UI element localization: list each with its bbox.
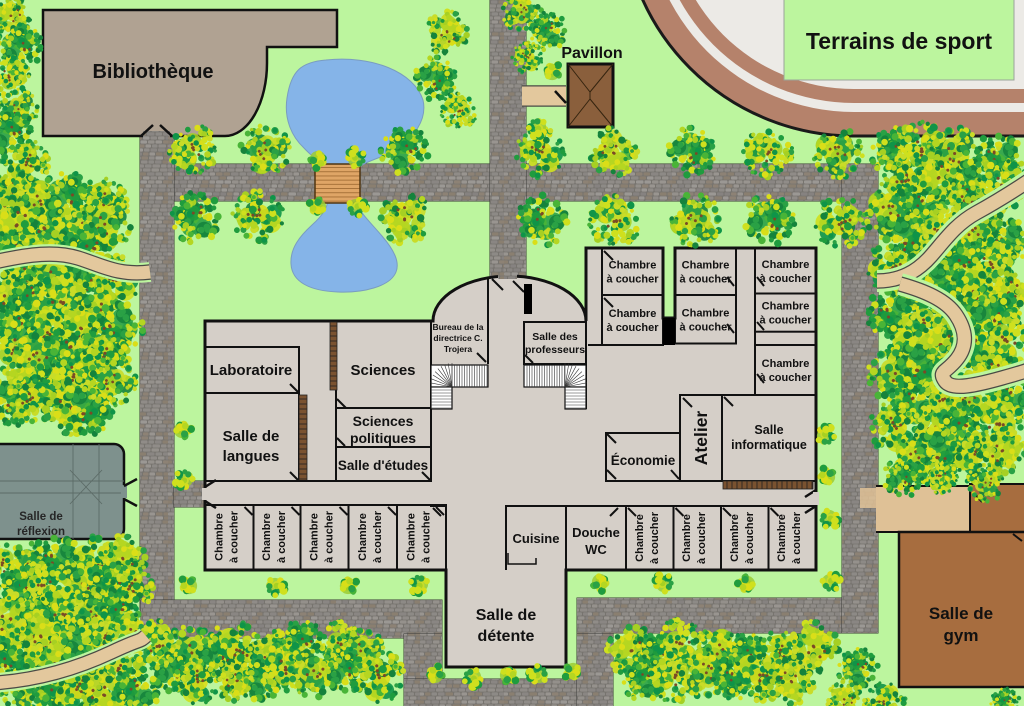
svg-text:Terrains de sport: Terrains de sport <box>806 28 993 54</box>
svg-text:Chambre: Chambre <box>406 513 418 561</box>
svg-text:détente: détente <box>478 628 535 645</box>
svg-text:Salle de: Salle de <box>929 604 993 623</box>
svg-text:Bureau de la: Bureau de la <box>432 322 483 332</box>
svg-text:Chambre: Chambre <box>261 513 273 561</box>
svg-text:à coucher: à coucher <box>760 372 813 384</box>
svg-text:Cuisine: Cuisine <box>513 531 560 546</box>
svg-text:WC: WC <box>585 542 607 557</box>
svg-text:Bibliothèque: Bibliothèque <box>92 61 213 83</box>
svg-text:à coucher: à coucher <box>791 511 803 564</box>
svg-text:Salle d'études: Salle d'études <box>338 458 428 473</box>
svg-text:Chambre: Chambre <box>609 260 657 272</box>
svg-text:Salle de: Salle de <box>223 428 280 445</box>
svg-text:Chambre: Chambre <box>357 513 369 561</box>
svg-text:à coucher: à coucher <box>680 321 733 333</box>
svg-text:directrice C.: directrice C. <box>433 333 482 343</box>
svg-text:à coucher: à coucher <box>760 315 813 327</box>
svg-text:à coucher: à coucher <box>649 511 661 564</box>
svg-text:Chambre: Chambre <box>762 358 810 370</box>
svg-text:Chambre: Chambre <box>309 513 321 561</box>
svg-text:à coucher: à coucher <box>276 510 288 563</box>
svg-text:à coucher: à coucher <box>421 510 433 563</box>
svg-text:Atelier: Atelier <box>691 411 711 466</box>
svg-text:à coucher: à coucher <box>744 511 756 564</box>
svg-text:à coucher: à coucher <box>680 274 733 286</box>
svg-text:Économie: Économie <box>611 453 676 468</box>
svg-text:Sciences: Sciences <box>353 413 414 429</box>
svg-text:à coucher: à coucher <box>324 510 336 563</box>
svg-text:Chambre: Chambre <box>762 301 810 313</box>
svg-text:à coucher: à coucher <box>760 273 813 285</box>
svg-text:Chambre: Chambre <box>762 259 810 271</box>
svg-text:Salle: Salle <box>754 423 783 437</box>
svg-text:Chambre: Chambre <box>682 260 730 272</box>
svg-text:Salle de: Salle de <box>19 511 62 523</box>
svg-text:gym: gym <box>944 626 979 645</box>
svg-text:Chambre: Chambre <box>681 514 693 562</box>
svg-text:Sciences: Sciences <box>350 362 415 379</box>
svg-text:Pavillon: Pavillon <box>561 45 622 62</box>
svg-text:Trojera: Trojera <box>444 344 473 354</box>
svg-text:à coucher: à coucher <box>372 510 384 563</box>
svg-text:professeurs: professeurs <box>525 344 585 356</box>
svg-text:informatique: informatique <box>731 438 807 452</box>
svg-text:Chambre: Chambre <box>776 514 788 562</box>
svg-text:Chambre: Chambre <box>214 513 226 561</box>
svg-text:Chambre: Chambre <box>634 514 646 562</box>
svg-text:à coucher: à coucher <box>607 274 660 286</box>
svg-text:Salle de: Salle de <box>476 607 537 624</box>
svg-text:langues: langues <box>223 448 280 465</box>
svg-text:à coucher: à coucher <box>607 322 660 334</box>
svg-text:Douche: Douche <box>572 525 620 540</box>
svg-text:Chambre: Chambre <box>729 514 741 562</box>
svg-text:Salle des: Salle des <box>532 331 578 343</box>
svg-text:à coucher: à coucher <box>696 511 708 564</box>
svg-text:Chambre: Chambre <box>609 308 657 320</box>
svg-text:Chambre: Chambre <box>682 307 730 319</box>
svg-text:à coucher: à coucher <box>229 510 241 563</box>
svg-text:réflexion: réflexion <box>17 526 65 538</box>
svg-text:Laboratoire: Laboratoire <box>210 362 293 379</box>
svg-text:politiques: politiques <box>350 430 416 446</box>
